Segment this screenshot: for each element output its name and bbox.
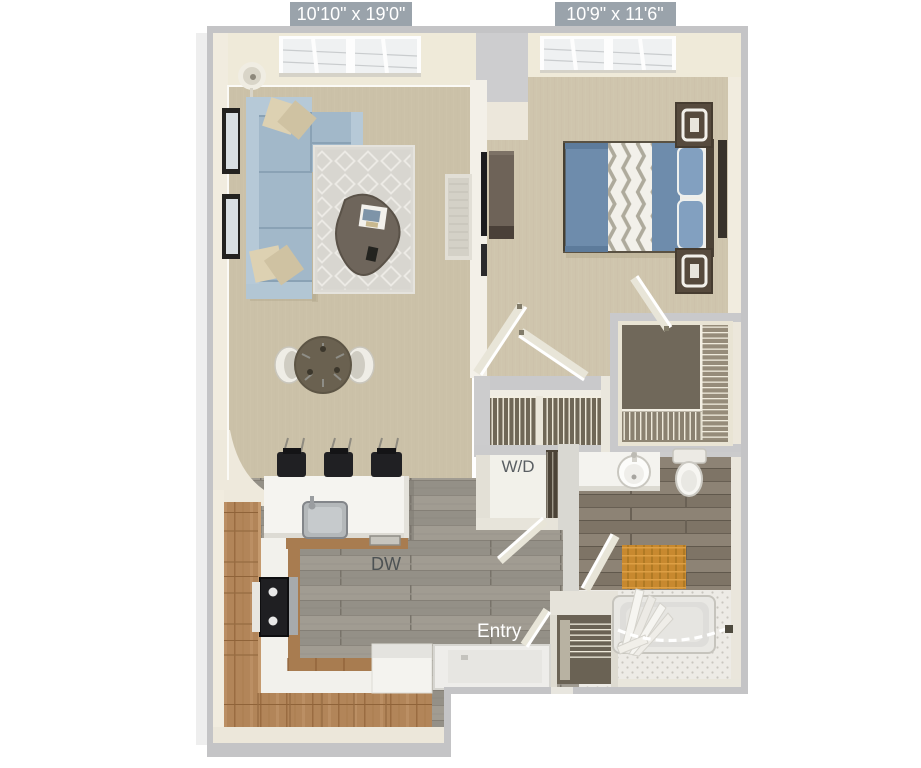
svg-text:Entry: Entry [477,621,522,642]
svg-text:DW: DW [371,554,401,574]
svg-text:10'9" x 11'6": 10'9" x 11'6" [566,4,663,24]
svg-text:10'10" x 19'0": 10'10" x 19'0" [297,4,406,24]
svg-text:W/D: W/D [501,457,534,476]
